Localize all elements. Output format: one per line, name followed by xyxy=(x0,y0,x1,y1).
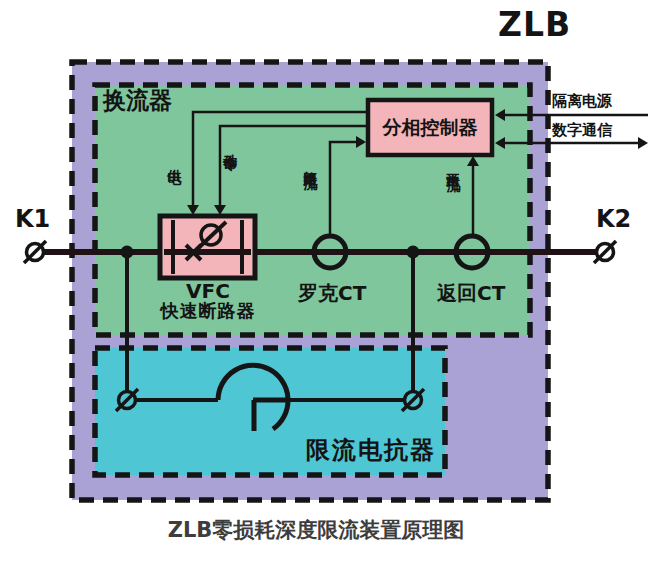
digital-comm-label: 数字通信 xyxy=(552,123,612,139)
figure-caption: ZLB零损耗深度限流装置原理图 xyxy=(6,519,626,541)
left-junction-dot xyxy=(121,246,134,259)
normal-current-label: 正常电流 xyxy=(446,162,461,166)
phase-controller-label: 分相控制器 xyxy=(368,100,492,155)
k2-terminal-icon xyxy=(594,241,616,263)
vfc-label-line2: 快速断路器 xyxy=(143,302,273,321)
vfc-label-line1: VFC xyxy=(143,281,273,302)
rogowski-ct-label: 罗克CT xyxy=(298,283,366,304)
terminal-k1-label: K1 xyxy=(15,207,50,232)
terminal-k2-label: K2 xyxy=(596,207,631,232)
schematic-canvas: ZLB K1 K2 换流器 分相控制器 VFC 快速断路器 罗克CT 返回CT … xyxy=(0,0,652,571)
diagram-title: ZLB xyxy=(498,8,571,43)
reactor-zone-label: 限流电抗器 xyxy=(306,438,436,463)
isolated-power-label: 隔离电源 xyxy=(552,94,612,110)
action-command-label: 动作命令 xyxy=(223,143,238,147)
power-supply-label: 供电 xyxy=(167,158,182,160)
right-junction-dot xyxy=(407,246,420,259)
converter-zone-label: 换流器 xyxy=(103,88,172,112)
k1-terminal-icon xyxy=(24,241,46,263)
vfc-breaker-label: VFC 快速断路器 xyxy=(143,281,273,321)
short-circuit-current-label: 短路电流 xyxy=(303,160,318,164)
return-ct-label: 返回CT xyxy=(437,283,505,304)
